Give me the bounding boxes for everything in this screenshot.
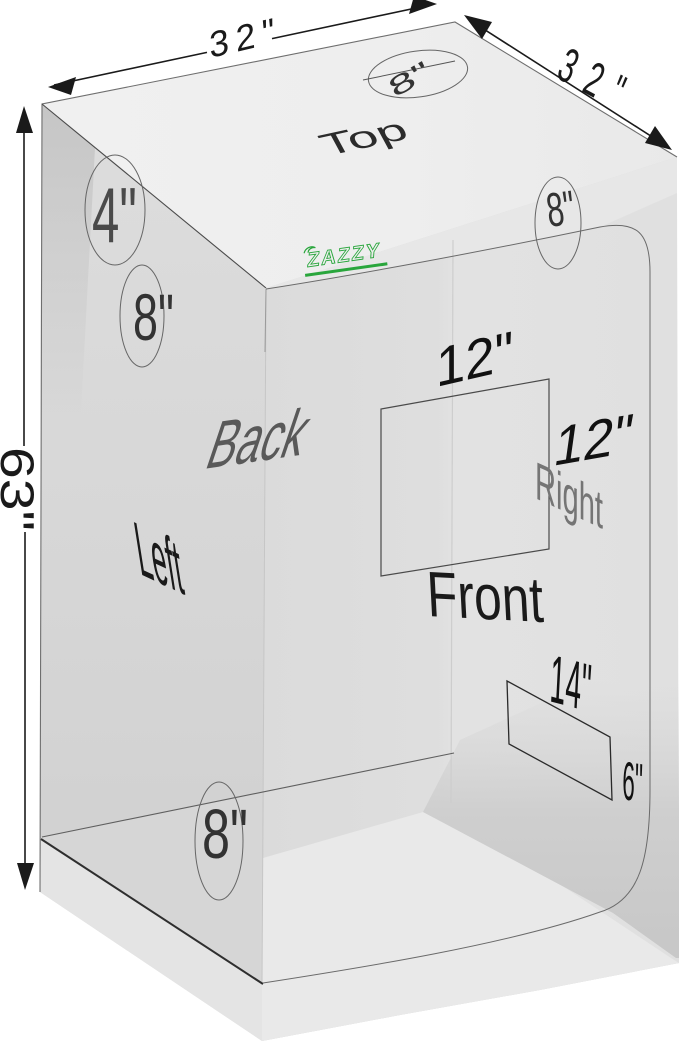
svg-text:4": 4"	[92, 171, 137, 258]
svg-text:6": 6"	[622, 749, 644, 813]
svg-text:14": 14"	[548, 641, 593, 727]
svg-text:32": 32"	[208, 8, 282, 66]
svg-text:Front: Front	[425, 559, 545, 637]
svg-text:8": 8"	[202, 795, 248, 873]
svg-text:8": 8"	[133, 280, 174, 354]
svg-text:63": 63"	[0, 447, 42, 531]
